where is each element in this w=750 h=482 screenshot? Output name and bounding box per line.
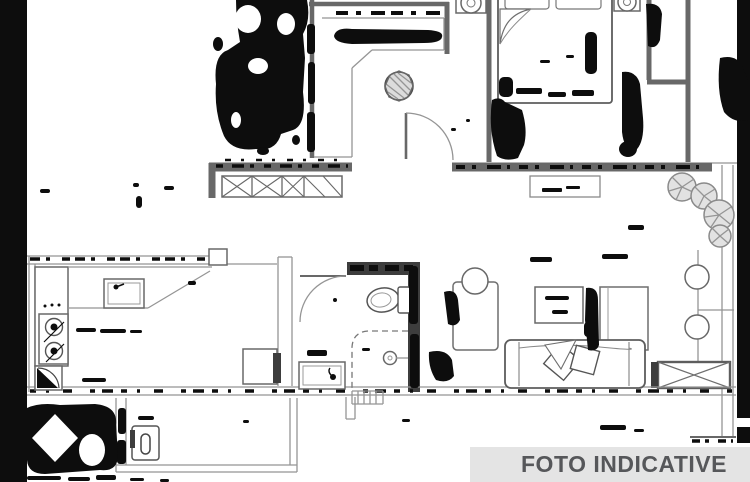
floor-plan-screenshot: FOTO INDICATIVE: [0, 0, 750, 482]
right-scan-bar-block: [737, 427, 750, 443]
wardrobe-x-hatched: [222, 176, 342, 197]
pillar: [209, 249, 227, 265]
sofa-with-cushions: [505, 340, 645, 388]
bathroom: [299, 276, 410, 404]
bathroom-shower: [352, 331, 408, 389]
nightstand-lamp-right: [614, 0, 640, 11]
ink-blob-top: [213, 0, 308, 155]
kitchen-corner-unit: [35, 366, 62, 390]
pillow-right: [556, 0, 601, 9]
bathroom-toilet: [365, 286, 410, 314]
floor-lamp-circle: [462, 268, 488, 294]
crossed-low-cabinet: [651, 362, 730, 388]
balcony-stool-top: [685, 265, 709, 289]
shower-threshold: [352, 391, 383, 404]
floor-plan-drawing: [0, 0, 750, 482]
balcony-stool-bottom: [685, 315, 709, 339]
balcony-room: [116, 398, 297, 472]
bedroom: [456, 0, 640, 103]
balcony-plants: [668, 173, 734, 247]
living-room: [453, 268, 648, 388]
window-sill: [530, 176, 600, 197]
kitchen: [35, 267, 281, 390]
pillow-left: [505, 0, 549, 9]
wall-stub: [346, 397, 355, 419]
bathroom-door: [300, 276, 346, 322]
right-balcony: [651, 165, 736, 437]
left-scan-bar: [0, 0, 27, 482]
laundry-appliance: [130, 426, 159, 460]
kitchen-sink: [104, 279, 144, 308]
ink-smudge-blobs: [27, 0, 748, 482]
dining-table: [243, 349, 281, 384]
coffee-table: [535, 287, 583, 323]
bathroom-sink: [299, 362, 345, 389]
hall-door: [406, 113, 453, 160]
plant-hatched-circle: [385, 71, 413, 101]
scan-edge-bars: [0, 0, 750, 482]
banner-label: FOTO INDICATIVE: [521, 451, 727, 478]
indicative-photo-banner: FOTO INDICATIVE: [470, 447, 750, 482]
nightstand-lamp-left: [456, 0, 486, 13]
